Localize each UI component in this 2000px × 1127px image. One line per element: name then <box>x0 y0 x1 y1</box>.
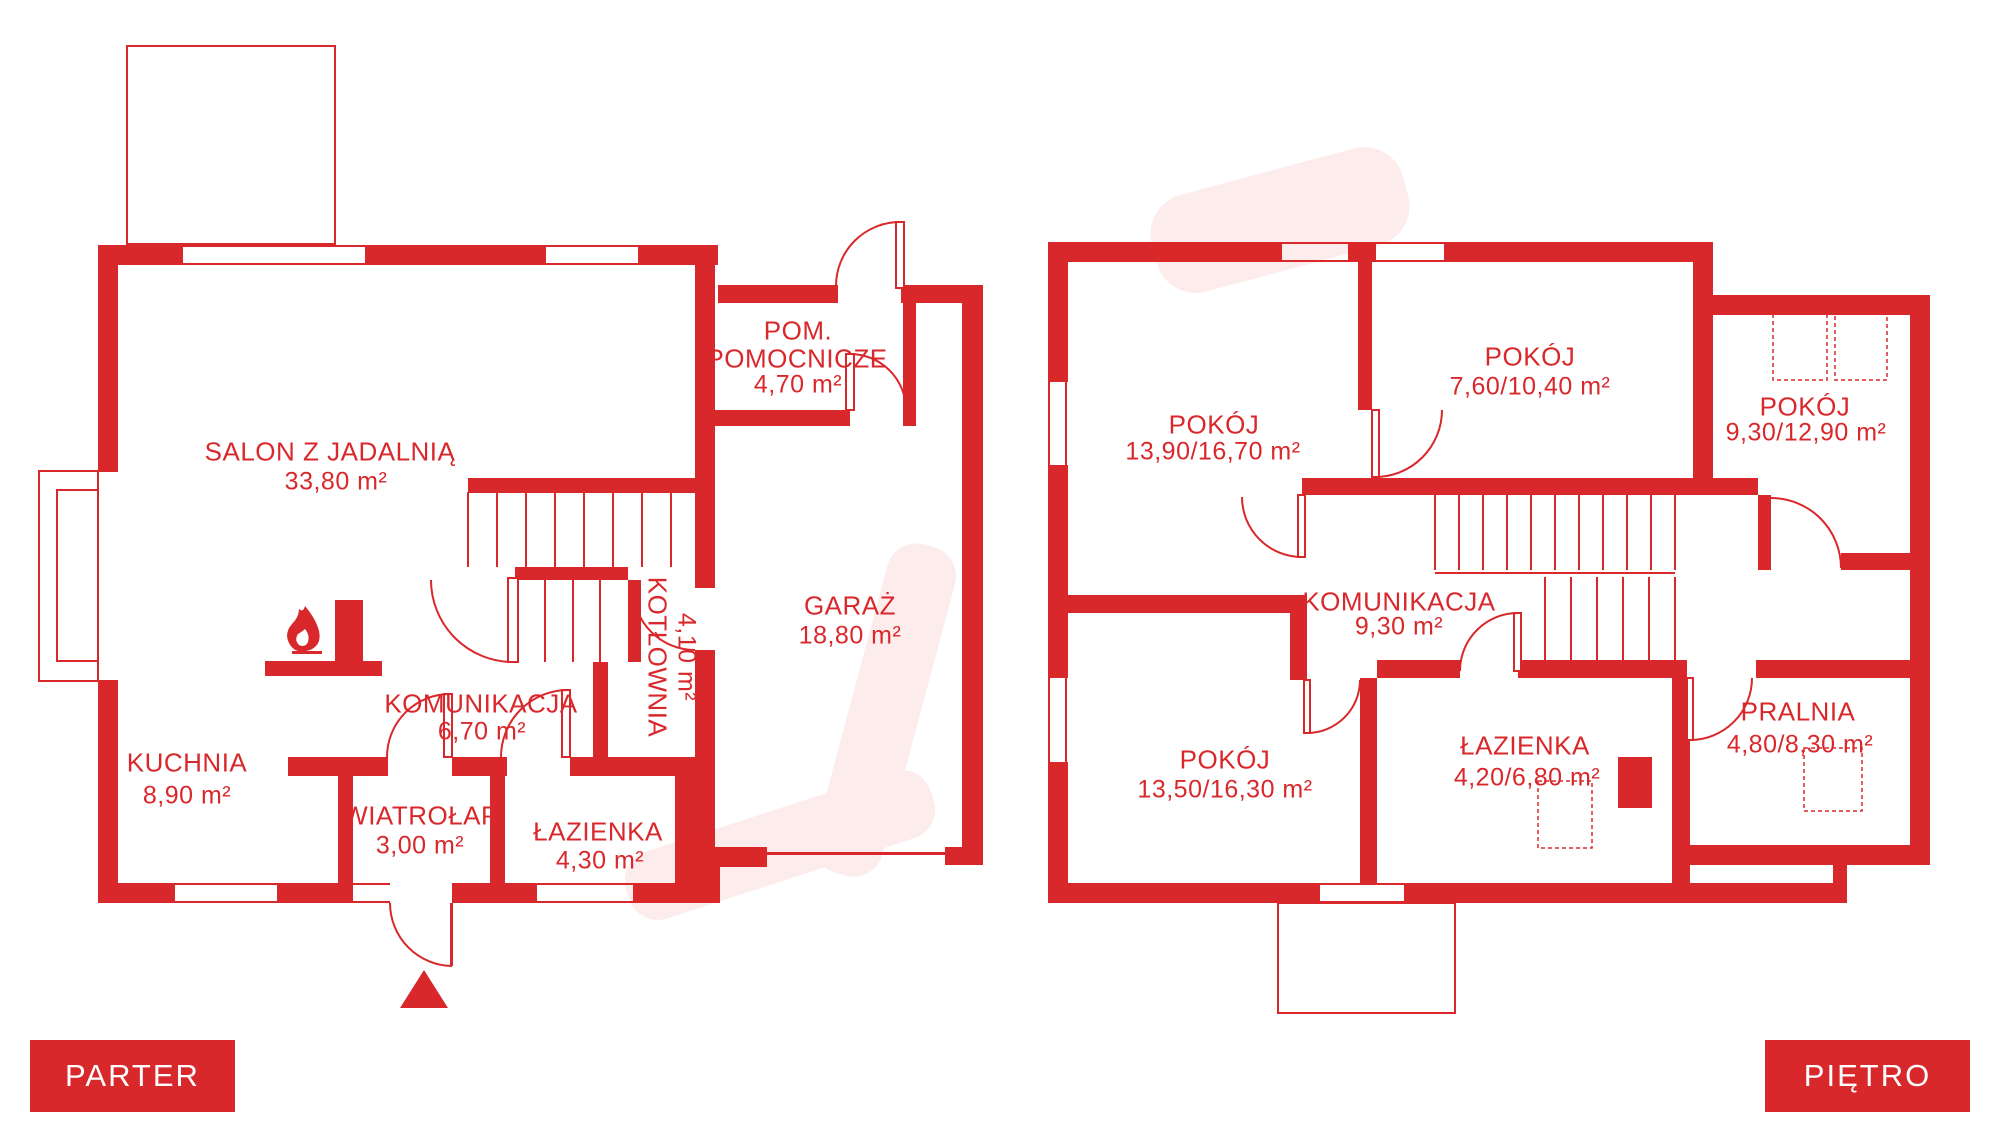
pietro-badge: PIĘTRO <box>1765 1040 1970 1112</box>
window-line <box>183 245 365 247</box>
kotlownia-label: KOTŁOWNIA <box>642 577 673 738</box>
window <box>175 883 277 903</box>
door-leaf <box>1687 678 1693 740</box>
window <box>1320 883 1404 903</box>
fireplace-column <box>335 600 363 663</box>
lazienka-label: ŁAZIENKA <box>533 817 663 848</box>
wiatrolap-area: 3,00 m² <box>376 832 464 861</box>
door-leaf <box>508 578 518 662</box>
salon-label: SALON Z JADALNIĄ <box>205 437 456 468</box>
pokoj-n-label: POKÓJ <box>1485 342 1576 373</box>
watermark-shape <box>617 762 943 927</box>
pokoj-nw-label: POKÓJ <box>1169 410 1260 441</box>
komunikacja-area: 6,70 m² <box>438 718 526 747</box>
triangle-up-icon <box>400 970 448 1008</box>
komunikacja-label: KOMUNIKACJA <box>384 689 577 720</box>
window <box>183 245 365 265</box>
door-leaf <box>1372 410 1379 477</box>
door-arc <box>1375 410 1442 477</box>
kuchnia-label: KUCHNIA <box>127 748 248 779</box>
door-leaf <box>896 222 904 288</box>
floorplan-canvas: SALON Z JADALNIĄ 33,80 m² POM. POMOCNICZ… <box>0 0 2000 1127</box>
threshold-line <box>353 901 390 903</box>
pokoj-sw-area: 13,50/16,30 m² <box>1137 776 1312 805</box>
pietro-terrace-outline <box>1278 903 1455 1013</box>
window-line <box>537 901 633 903</box>
pom-area: 4,70 m² <box>754 371 842 400</box>
window-line <box>1048 382 1050 465</box>
window-line <box>546 263 638 265</box>
window-line <box>183 263 365 265</box>
kotlownia-area: 4,10 m² <box>672 613 701 701</box>
fireplace-base <box>265 661 382 676</box>
komunikacja2-area: 9,30 m² <box>1355 613 1443 642</box>
parter-terrace-outline <box>127 46 335 244</box>
window-line <box>1376 260 1444 262</box>
door-arc <box>1460 613 1518 671</box>
pom-label-1: POM. <box>764 316 832 347</box>
stair-treads-upper <box>468 492 695 567</box>
garaz-area: 18,80 m² <box>799 622 902 651</box>
stair-treads-lower <box>1545 577 1675 660</box>
pietro-doors <box>1242 410 1841 740</box>
door-opening <box>838 285 901 303</box>
door-arc <box>1771 498 1841 568</box>
parter-badge: PARTER <box>30 1040 235 1112</box>
pralnia-label: PRALNIA <box>1741 697 1856 728</box>
door-arc <box>431 580 513 662</box>
window-line <box>1065 678 1067 762</box>
bay-window-inner <box>57 490 98 661</box>
lazienka-area: 4,30 m² <box>556 847 644 876</box>
lazienka2-area: 4,20/6,80 m² <box>1454 764 1600 793</box>
stair-treads-lower <box>545 580 600 662</box>
door-leaf <box>1514 613 1521 671</box>
watermark-shape <box>1141 138 1418 302</box>
pralnia-area: 4,80/8,30 m² <box>1727 731 1873 760</box>
garaz-label: GARAŻ <box>804 591 896 622</box>
pokoj-sw-label: POKÓJ <box>1180 745 1271 776</box>
pokoj-ne-area: 9,30/12,90 m² <box>1726 419 1887 448</box>
threshold-line <box>353 883 390 885</box>
door-arc <box>836 222 900 286</box>
door-leaf <box>1298 495 1305 557</box>
pokoj-nw-area: 13,90/16,70 m² <box>1125 438 1300 467</box>
kuchnia-area: 8,90 m² <box>143 782 231 811</box>
window-line <box>1320 883 1404 885</box>
window-line <box>537 883 633 885</box>
furniture-dashed <box>1773 312 1827 380</box>
entrance-door-arc <box>390 903 452 966</box>
entrance-door-leaf <box>450 903 453 966</box>
window <box>537 883 633 903</box>
door-arc <box>1307 680 1360 733</box>
furniture-dashed <box>1835 313 1887 380</box>
floorplan-drawing <box>0 0 2000 1127</box>
window-line <box>546 245 638 247</box>
fireplace-hearth-line <box>292 651 322 654</box>
door-arc <box>1242 497 1302 557</box>
window <box>546 245 638 265</box>
lazienka2-label: ŁAZIENKA <box>1460 731 1590 762</box>
pokoj-n-area: 7,60/10,40 m² <box>1450 373 1611 402</box>
stair-treads-upper <box>1435 495 1675 573</box>
entrance-opening <box>353 883 452 903</box>
door-leaf <box>1304 680 1310 733</box>
window-line <box>175 901 277 903</box>
fireplace <box>265 600 382 676</box>
window-line <box>1048 678 1050 762</box>
wiatrolap-label: WIATROŁAP <box>343 801 499 832</box>
bay-window-outer <box>39 471 98 681</box>
salon-area: 33,80 m² <box>285 468 388 497</box>
window-line <box>175 883 277 885</box>
window <box>1376 242 1444 262</box>
window-line <box>1065 382 1067 465</box>
